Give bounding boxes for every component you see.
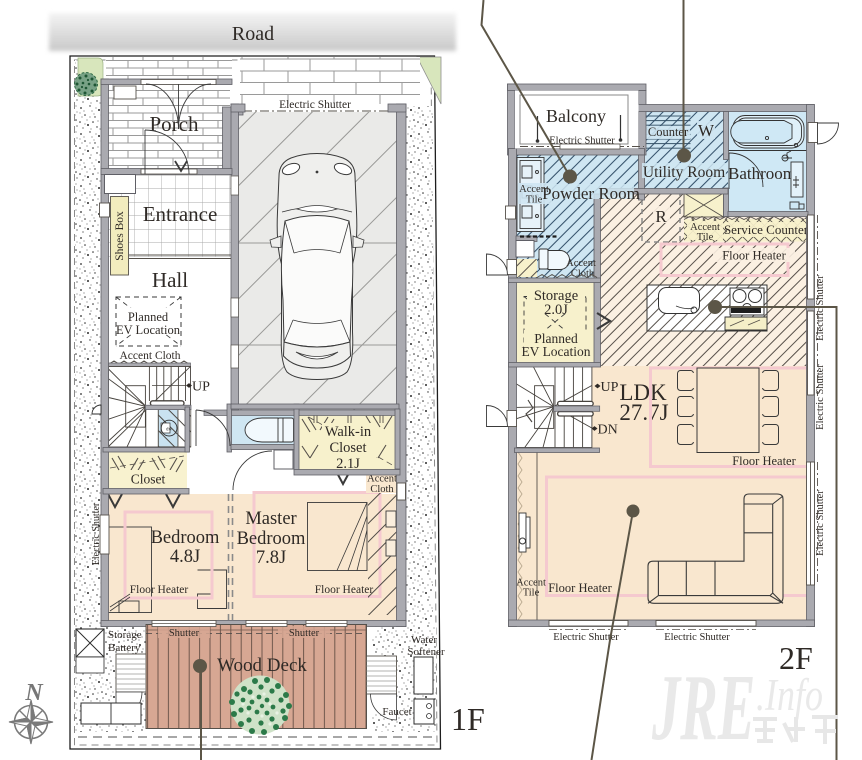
svg-text:Shutter: Shutter [289,628,320,639]
svg-text:Service Counter: Service Counter [724,222,809,237]
svg-text:Softener: Softener [407,646,445,658]
svg-text:Closet: Closet [131,472,166,487]
svg-text:Walk-in: Walk-in [325,424,372,440]
svg-text:Bedroom: Bedroom [237,529,306,549]
svg-text:2.0J: 2.0J [544,302,568,318]
svg-text:Electric Shutter: Electric Shutter [815,364,826,430]
svg-text:7.8J: 7.8J [256,548,286,568]
svg-text:Cloth: Cloth [370,484,394,495]
svg-text:Powder Room: Powder Room [542,184,640,203]
svg-text:Utility Room: Utility Room [643,164,725,181]
svg-text:.Info: .Info [756,670,823,720]
svg-text:Storage: Storage [108,629,142,641]
svg-text:Closet: Closet [329,440,366,456]
svg-text:Battery: Battery [108,642,141,654]
svg-text:Wood Deck: Wood Deck [217,655,307,676]
svg-text:Electric Shutter: Electric Shutter [815,490,826,556]
svg-text:Electric Shutter: Electric Shutter [91,502,102,565]
svg-text:W: W [698,121,715,140]
svg-text:Floor Heater: Floor Heater [130,584,189,596]
svg-text:Bedroom: Bedroom [151,528,220,548]
svg-text:Shutter: Shutter [169,628,200,639]
svg-text:dw: dw [166,428,173,433]
svg-text:Water: Water [411,634,437,646]
svg-text:Tile: Tile [697,232,714,243]
svg-text:UP: UP [601,380,619,395]
svg-text:4.8J: 4.8J [170,547,200,567]
svg-text:Balcony: Balcony [546,106,606,126]
svg-text:Accent Cloth: Accent Cloth [120,350,181,362]
svg-text:Tile: Tile [526,195,543,206]
svg-text:Floor Heater: Floor Heater [722,249,786,263]
svg-text:JRE: JRE [651,655,755,759]
svg-text:1F: 1F [451,701,485,737]
svg-text:Hall: Hall [152,268,188,292]
svg-text:Faucet: Faucet [382,706,411,718]
svg-text:N: N [24,680,44,706]
svg-text:EV Location: EV Location [116,323,181,337]
svg-text:Floor Heater: Floor Heater [315,584,374,596]
svg-text:Master: Master [245,509,296,529]
svg-text:Tile: Tile [523,588,540,599]
svg-text:Floor Heater: Floor Heater [548,581,612,595]
svg-text:EV Location: EV Location [521,344,590,359]
svg-text:Planned: Planned [128,310,169,324]
svg-text:Cloth: Cloth [571,269,595,280]
svg-text:R: R [655,207,667,226]
svg-text:Electric Shutter: Electric Shutter [279,99,351,111]
svg-text:Road: Road [232,23,274,45]
svg-text:UP: UP [192,380,210,395]
svg-text:Accent: Accent [566,258,596,269]
svg-text:Shoes Box: Shoes Box [114,211,126,261]
svg-text:Entrance: Entrance [143,202,218,226]
svg-text:Floor Heater: Floor Heater [732,454,796,468]
svg-text:27.7J: 27.7J [619,400,668,425]
svg-text:Electric Shutter: Electric Shutter [664,632,730,643]
svg-text:DN: DN [598,423,618,438]
